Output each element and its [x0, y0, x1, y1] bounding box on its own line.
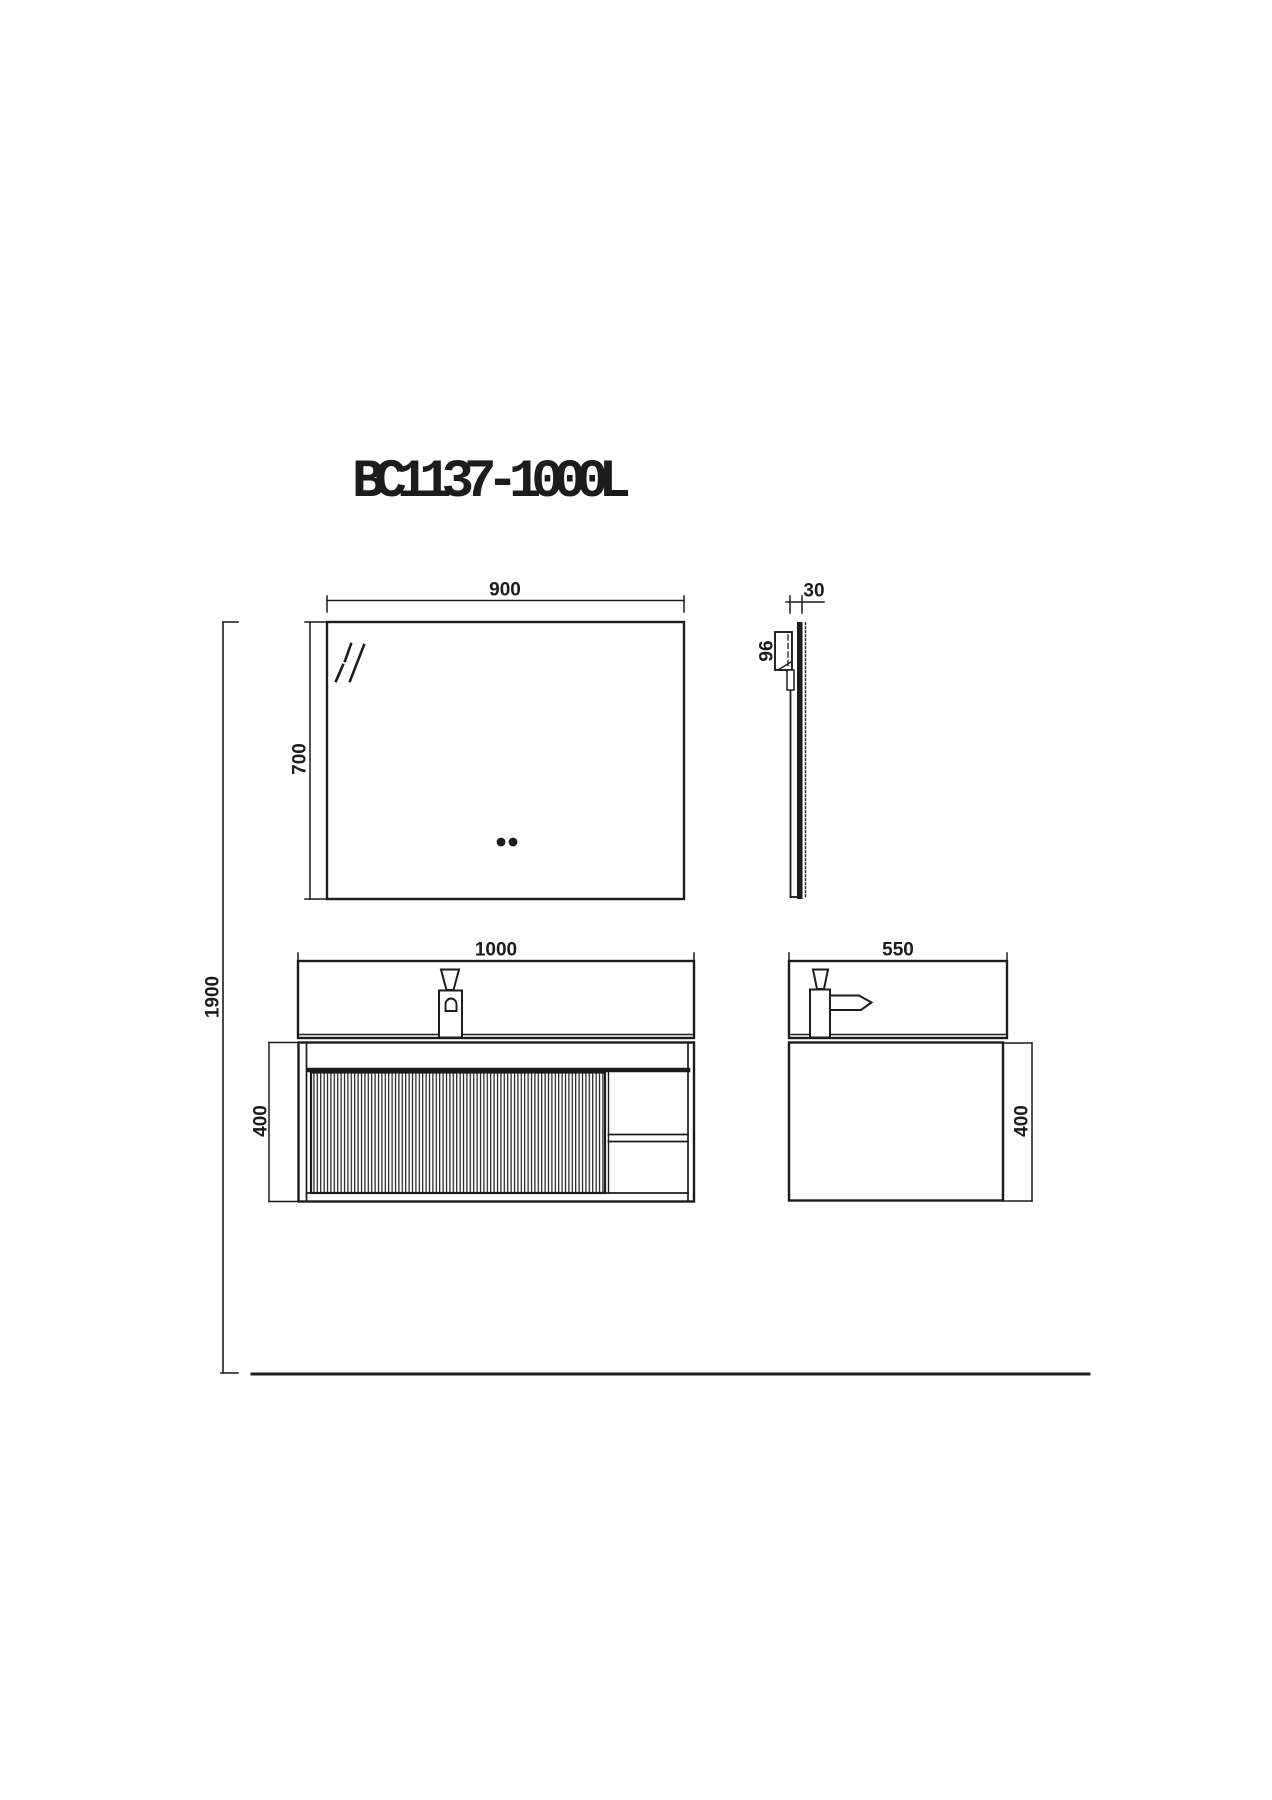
- fluted-drawer-front: [311, 1073, 605, 1194]
- dim-label-vanity-depth: 550: [882, 941, 914, 960]
- vanity-side-view: [789, 961, 1007, 1201]
- cabinet-side-body: [789, 1043, 1003, 1201]
- dim-vanity-front-height-lines: [269, 1043, 298, 1202]
- dim-label-vanity-side-height: 400: [1013, 1105, 1032, 1137]
- dim-label-mirror-bracket: 96: [758, 640, 777, 661]
- glass-reflection-marks: [336, 644, 364, 681]
- mirror-glass-side: [797, 622, 803, 899]
- dim-label-vanity-width: 1000: [475, 941, 517, 960]
- mirror-front-view: [327, 622, 684, 899]
- vanity-front-view: [298, 961, 694, 1202]
- dim-overall-height-lines: [221, 622, 238, 1373]
- dim-label-vanity-front-height: 400: [252, 1105, 271, 1137]
- touch-sensor-dots: [497, 838, 518, 847]
- faucet-handle: [446, 999, 457, 1012]
- mount-bracket-lower-clip: [787, 670, 794, 690]
- dim-label-mirror-width: 900: [489, 581, 521, 600]
- drawing-canvas: [0, 0, 1272, 1800]
- dim-label-mirror-height: 700: [291, 743, 310, 775]
- mirror-side-view: [775, 622, 806, 899]
- mount-bracket: [775, 632, 792, 670]
- mirror-frame: [327, 622, 684, 899]
- drawing-sheet: BC1137-1000L: [0, 0, 1272, 1800]
- countertop-front: [298, 961, 694, 1038]
- dim-label-overall-height: 1900: [204, 976, 223, 1018]
- dim-label-mirror-thickness: 30: [803, 582, 824, 601]
